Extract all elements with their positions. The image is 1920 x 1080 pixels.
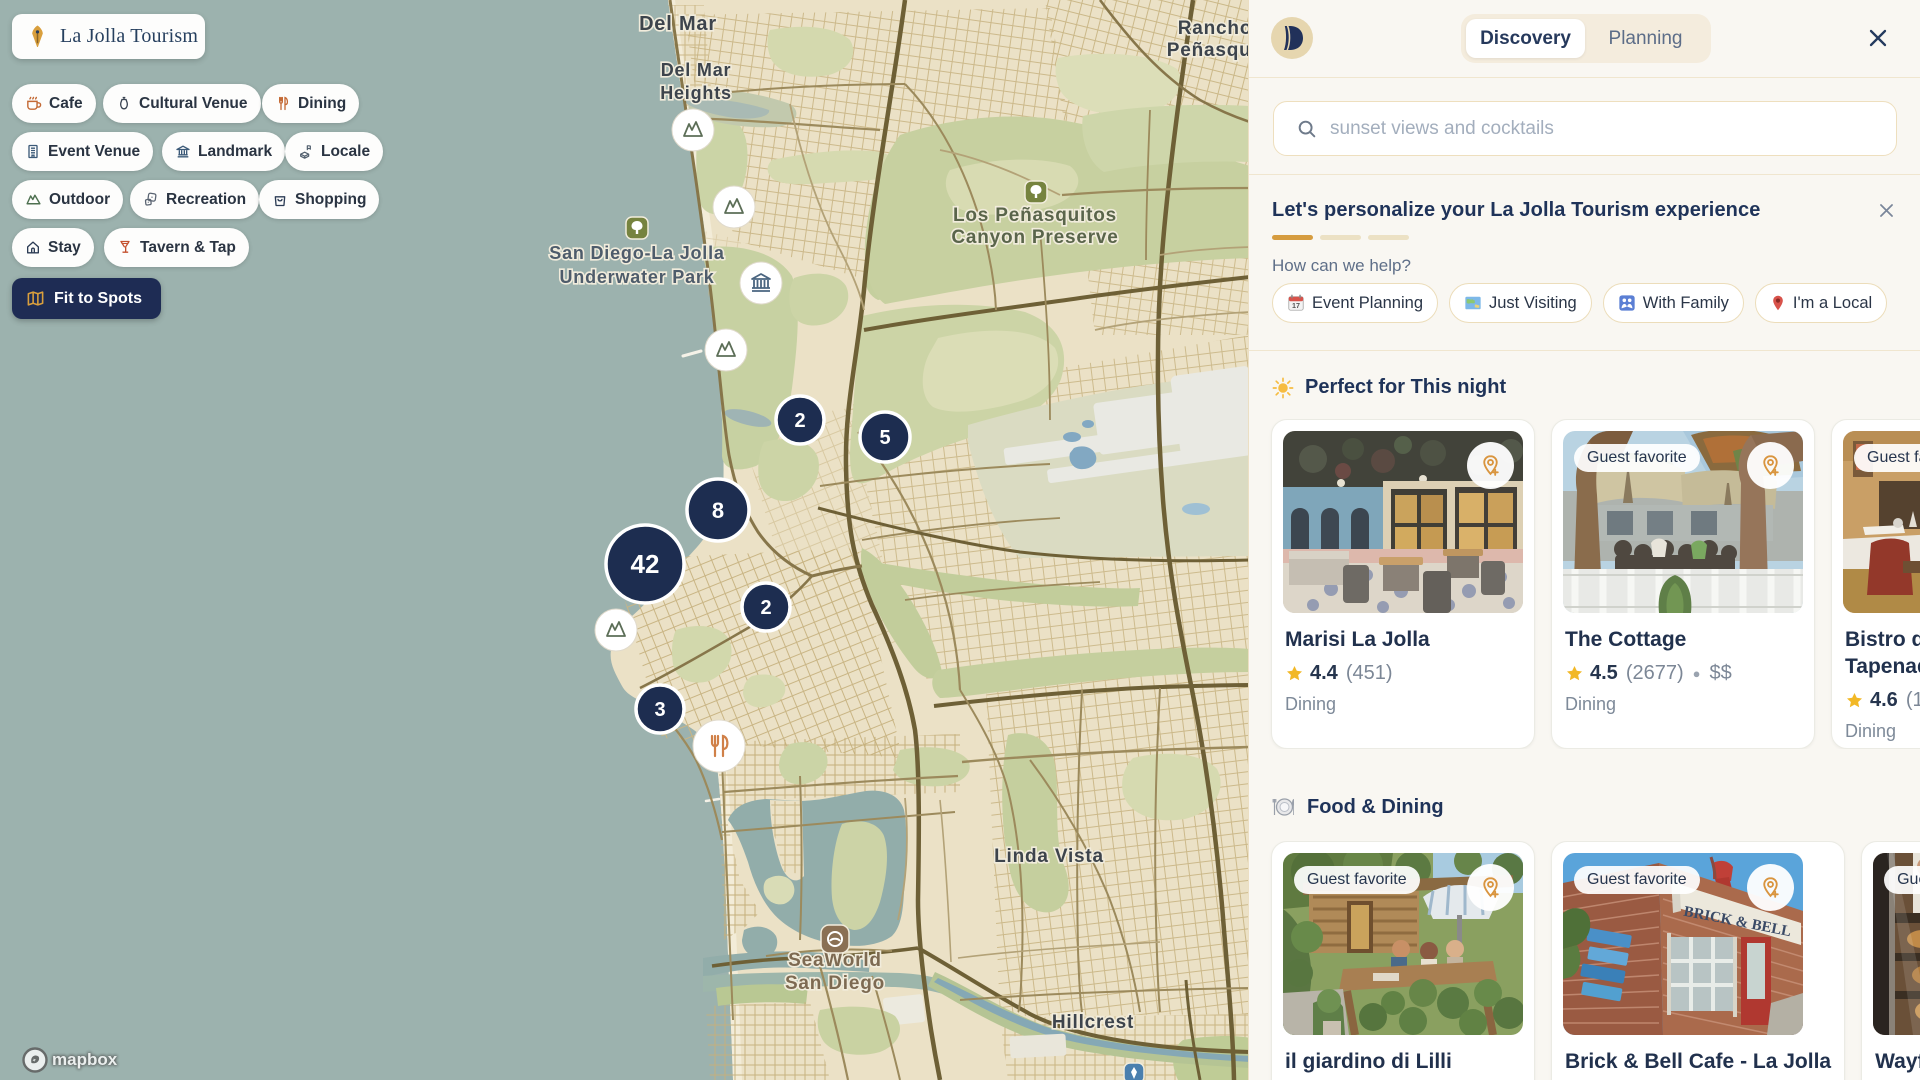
- svg-text:2: 2: [760, 597, 771, 619]
- svg-text:Rancho: Rancho: [1178, 18, 1250, 39]
- svg-text:8: 8: [712, 498, 724, 523]
- svg-text:Heights: Heights: [660, 83, 732, 103]
- svg-text:Linda Vista: Linda Vista: [994, 846, 1104, 867]
- svg-text:2: 2: [794, 410, 805, 432]
- svg-text:Los Peñasquitos: Los Peñasquitos: [953, 205, 1117, 226]
- svg-text:San Diego: San Diego: [785, 973, 885, 994]
- svg-text:San Diego-La Jolla: San Diego-La Jolla: [549, 243, 725, 263]
- svg-text:17: 17: [1292, 301, 1300, 310]
- svg-text:42: 42: [631, 549, 660, 579]
- svg-text:Del Mar: Del Mar: [661, 60, 732, 80]
- svg-text:Del Mar: Del Mar: [639, 13, 717, 35]
- svg-text:Peñasquito: Peñasquito: [1167, 40, 1250, 61]
- svg-text:Hillcrest: Hillcrest: [1052, 1012, 1134, 1033]
- svg-text:5: 5: [879, 427, 890, 449]
- svg-text:Underwater Park: Underwater Park: [559, 267, 714, 287]
- svg-text:3: 3: [654, 699, 665, 721]
- svg-text:Canyon Preserve: Canyon Preserve: [951, 227, 1118, 248]
